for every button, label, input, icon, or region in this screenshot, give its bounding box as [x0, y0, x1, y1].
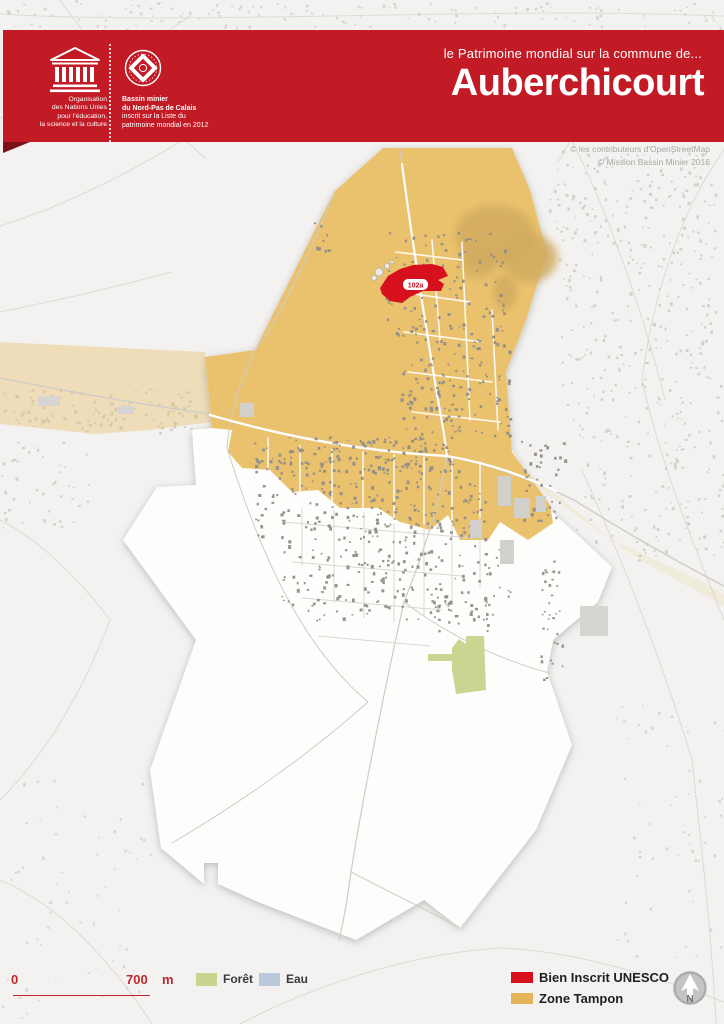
buildings-outside — [697, 231, 699, 234]
copyright-line: © Mission Bassin Minier 2016 — [570, 156, 710, 169]
buildings-town — [448, 621, 450, 624]
buildings-outside — [682, 218, 685, 221]
buildings-outside — [650, 247, 652, 249]
buildings-outside — [581, 207, 584, 210]
buildings-town — [432, 330, 435, 333]
buildings-town — [453, 524, 455, 525]
buildings-town — [462, 323, 465, 326]
buildings-town — [425, 451, 428, 453]
buildings-town — [272, 494, 274, 497]
buildings-town — [402, 417, 405, 420]
buildings-outside — [655, 338, 657, 340]
buildings-town — [425, 514, 427, 516]
buildings-town — [556, 585, 558, 587]
buildings-town — [424, 369, 427, 372]
buildings-outside — [592, 436, 595, 438]
buildings-outside — [651, 726, 654, 730]
buildings-outside — [612, 398, 614, 401]
buildings-town — [431, 431, 433, 433]
buildings-outside — [630, 476, 632, 477]
buildings-town — [441, 530, 443, 532]
buildings-town — [492, 336, 495, 339]
buildings-town — [540, 520, 543, 523]
buildings-town — [496, 328, 499, 332]
buildings-town — [318, 521, 321, 523]
buildings-outside — [699, 347, 701, 349]
buildings-outside — [687, 202, 690, 205]
buildings-town — [435, 407, 438, 411]
buildings-outside — [686, 334, 688, 336]
buildings-town — [405, 547, 407, 548]
buildings-town — [354, 551, 356, 553]
buildings-outside — [36, 938, 38, 940]
buildings-outside — [248, 26, 251, 29]
buildings-outside — [17, 10, 19, 13]
buildings-town — [292, 576, 295, 579]
buildings-town — [534, 453, 537, 456]
buildings-outside — [709, 204, 711, 206]
buildings-town — [351, 614, 353, 615]
buildings-outside — [613, 242, 616, 245]
buildings-outside — [617, 245, 619, 247]
buildings-town — [415, 457, 417, 459]
buildings-outside — [644, 386, 646, 388]
buildings-town — [414, 428, 416, 430]
buildings-town — [430, 409, 433, 412]
buildings-town — [479, 364, 482, 366]
buildings-town — [528, 475, 530, 476]
buildings-town — [262, 449, 265, 452]
buildings-outside — [624, 933, 626, 936]
buildings-town — [338, 539, 341, 541]
buildings-outside — [626, 446, 628, 448]
buildings-outside — [93, 924, 94, 925]
buildings-town — [311, 605, 313, 607]
buildings-outside — [708, 468, 710, 470]
buildings-town — [385, 577, 387, 579]
buildings-outside — [686, 516, 689, 518]
buildings-town — [371, 581, 374, 583]
buildings-town — [489, 572, 492, 575]
buildings-outside — [649, 184, 652, 187]
buildings-outside — [123, 965, 126, 968]
buildings-outside — [680, 397, 682, 399]
buildings-town — [452, 463, 454, 465]
buildings-outside — [621, 505, 624, 508]
buildings-town — [321, 591, 324, 593]
buildings-outside — [178, 21, 180, 23]
buildings-outside — [659, 515, 661, 516]
buildings-outside — [394, 6, 396, 9]
buildings-outside — [648, 227, 650, 229]
buildings-outside — [566, 227, 569, 230]
buildings-outside — [136, 858, 138, 859]
buildings-town — [255, 465, 258, 468]
buildings-town — [329, 249, 331, 251]
buildings-town — [456, 409, 458, 411]
industrial-building — [536, 496, 546, 512]
buildings-outside — [674, 10, 676, 12]
buildings-outside — [657, 528, 660, 531]
buildings-outside — [515, 7, 517, 9]
buildings-outside — [170, 429, 173, 432]
buildings-town — [487, 624, 490, 627]
scale-unit: m — [162, 972, 174, 987]
buildings-outside — [675, 353, 677, 356]
buildings-outside — [704, 326, 706, 328]
buildings-town — [438, 619, 440, 621]
buildings-town — [384, 472, 386, 474]
buildings-town — [393, 502, 396, 504]
buildings-town — [301, 462, 303, 465]
buildings-outside — [640, 188, 642, 190]
buildings-outside — [260, 6, 262, 8]
buildings-town — [485, 308, 487, 310]
buildings-outside — [720, 814, 723, 816]
buildings-town — [542, 628, 545, 630]
buildings-town — [456, 297, 458, 299]
buildings-outside — [687, 522, 690, 524]
buildings-outside — [661, 266, 663, 268]
buildings-outside — [306, 10, 308, 12]
buildings-outside — [698, 431, 700, 433]
buildings-town — [537, 520, 539, 522]
buildings-town — [379, 549, 382, 551]
buildings-town — [462, 566, 464, 567]
buildings-town — [475, 240, 477, 241]
buildings-town — [430, 388, 432, 391]
site-label-text: 102a — [408, 283, 424, 290]
buildings-outside — [37, 780, 40, 782]
buildings-outside — [583, 437, 585, 438]
buildings-town — [399, 578, 401, 580]
buildings-town — [492, 614, 494, 616]
buildings-town — [305, 462, 308, 464]
buildings-town — [466, 393, 469, 396]
buildings-outside — [75, 0, 77, 3]
buildings-outside — [685, 946, 687, 948]
buildings-outside — [563, 226, 565, 228]
buildings-town — [439, 523, 441, 525]
legend-item-forest: Forêt — [196, 972, 253, 986]
buildings-town — [448, 409, 450, 411]
buildings-town — [410, 330, 413, 333]
buildings-outside — [619, 346, 622, 349]
buildings-outside — [639, 851, 641, 853]
buildings-town — [441, 383, 443, 385]
legend-item-inscribed: Bien Inscrit UNESCO — [511, 970, 669, 985]
buildings-town — [555, 613, 557, 614]
buildings-town — [445, 595, 448, 598]
buildings-town — [458, 416, 461, 418]
buildings-town — [352, 446, 355, 449]
buildings-outside — [14, 26, 16, 27]
buildings-town — [382, 467, 385, 471]
buildings-outside — [171, 8, 174, 10]
buildings-outside — [603, 472, 606, 476]
buildings-town — [410, 525, 413, 528]
buildings-town — [545, 571, 548, 573]
buildings-town — [266, 447, 268, 449]
buildings-outside — [562, 362, 564, 364]
buildings-town — [437, 597, 439, 599]
buildings-town — [478, 580, 481, 582]
buildings-outside — [713, 20, 715, 22]
buildings-outside — [638, 724, 640, 726]
buildings-outside — [617, 228, 620, 231]
buildings-outside — [355, 24, 357, 26]
buildings-outside — [581, 428, 584, 430]
buildings-outside — [567, 164, 569, 166]
industrial-building — [514, 498, 530, 518]
buildings-outside — [633, 837, 636, 840]
buildings-outside — [571, 329, 573, 331]
buildings-outside — [665, 442, 667, 443]
buildings-town — [393, 541, 395, 543]
buildings-outside — [684, 176, 686, 178]
buildings-town — [407, 463, 410, 467]
buildings-outside — [687, 237, 689, 239]
buildings-outside — [720, 530, 723, 532]
buildings-town — [368, 530, 371, 534]
buildings-outside — [690, 367, 693, 369]
buildings-town — [482, 380, 484, 383]
buildings-outside — [97, 25, 99, 28]
buildings-town — [554, 457, 556, 460]
buildings-outside — [703, 535, 706, 538]
buildings-outside — [645, 217, 648, 220]
buildings-outside — [647, 318, 650, 320]
buildings-town — [432, 358, 434, 360]
buildings-outside — [608, 355, 611, 358]
buildings-outside — [642, 15, 644, 17]
buildings-outside — [497, 16, 499, 18]
buildings-town — [439, 605, 441, 607]
buildings-outside — [699, 282, 701, 284]
buildings-town — [412, 566, 414, 568]
buildings-town — [410, 460, 412, 462]
buildings-outside — [503, 24, 506, 27]
buildings-town — [346, 565, 349, 569]
buildings-town — [385, 572, 387, 574]
buildings-outside — [574, 231, 577, 234]
buildings-outside — [133, 970, 134, 971]
buildings-outside — [680, 504, 682, 505]
buildings-outside — [88, 972, 90, 974]
buildings-town — [418, 524, 420, 526]
buildings-outside — [719, 489, 722, 491]
buildings-outside — [699, 239, 702, 242]
buildings-town — [494, 435, 496, 437]
buildings-town — [544, 580, 547, 583]
buildings-outside — [653, 526, 656, 529]
buildings-outside — [686, 7, 688, 8]
buildings-outside — [601, 26, 603, 28]
buildings-town — [536, 465, 538, 468]
buildings-outside — [601, 440, 603, 441]
buildings-town — [407, 481, 410, 485]
buildings-town — [328, 524, 331, 527]
buildings-town — [426, 259, 428, 262]
buildings-town — [313, 472, 315, 475]
buildings-town — [408, 394, 410, 396]
buildings-town — [449, 470, 451, 472]
buildings-outside — [687, 731, 689, 733]
buildings-town — [424, 553, 427, 556]
buildings-outside — [594, 215, 596, 218]
buildings-town — [283, 520, 286, 522]
buildings-town — [454, 431, 456, 433]
buildings-outside — [674, 463, 677, 467]
buildings-outside — [584, 239, 587, 242]
buildings-outside — [630, 457, 633, 459]
buildings-town — [354, 497, 357, 500]
buildings-town — [329, 481, 331, 484]
buildings-town — [540, 461, 542, 463]
buildings-town — [548, 618, 550, 619]
buildings-town — [508, 382, 511, 385]
bm-line: du Nord-Pas de Calais — [122, 105, 208, 114]
buildings-outside — [680, 263, 682, 265]
buildings-outside — [608, 508, 610, 510]
buildings-town — [415, 523, 417, 525]
buildings-outside — [22, 522, 24, 524]
buildings-outside — [157, 2, 160, 5]
buildings-outside — [705, 244, 707, 246]
bm-line: Bassin minier — [122, 96, 208, 105]
buildings-outside — [455, 14, 458, 17]
buildings-town — [559, 456, 562, 459]
buildings-outside — [682, 284, 684, 286]
org-line: des Nations Unies — [3, 104, 107, 112]
buildings-town — [384, 524, 386, 526]
buildings-town — [402, 452, 405, 454]
north-arrow-icon: N — [671, 969, 709, 1007]
buildings-outside — [670, 502, 672, 504]
buildings-town — [525, 490, 528, 492]
buildings-town — [465, 239, 468, 242]
buildings-town — [368, 541, 370, 543]
buildings-town — [442, 505, 445, 507]
buildings-town — [276, 494, 278, 496]
buildings-outside — [710, 184, 713, 186]
buildings-town — [541, 661, 544, 663]
buildings-town — [280, 513, 283, 516]
terril-wooded — [460, 246, 496, 278]
buildings-outside — [721, 508, 723, 510]
bm-line: patrimoine mondial en 2012 — [122, 122, 208, 131]
buildings-town — [397, 562, 400, 565]
buildings-outside — [563, 278, 565, 280]
buildings-outside — [689, 531, 691, 532]
buildings-outside — [114, 868, 116, 870]
buildings-outside — [640, 349, 642, 351]
road-outside — [0, 272, 172, 312]
buildings-town — [450, 327, 453, 330]
buildings-town — [284, 458, 286, 460]
buildings-outside — [109, 16, 110, 18]
buildings-town — [367, 442, 369, 444]
buildings-outside — [568, 279, 571, 282]
buildings-town — [416, 481, 418, 483]
buildings-outside — [672, 507, 675, 510]
buildings-outside — [88, 484, 90, 486]
scale-end: 700 — [126, 972, 148, 987]
buildings-town — [508, 590, 510, 591]
buildings-outside — [570, 289, 572, 291]
buildings-outside — [589, 24, 591, 26]
buildings-town — [451, 437, 454, 439]
buildings-outside — [555, 17, 557, 19]
buildings-outside — [5, 518, 8, 521]
buildings-outside — [677, 855, 679, 857]
buildings-outside — [592, 208, 594, 210]
buildings-town — [387, 526, 389, 528]
buildings-town — [419, 439, 421, 441]
buildings-outside — [594, 187, 596, 190]
buildings-town — [295, 493, 297, 495]
buildings-town — [429, 466, 432, 470]
industrial-building — [500, 540, 514, 564]
buildings-town — [486, 573, 488, 575]
buildings-outside — [721, 546, 723, 548]
buildings-town — [373, 572, 375, 574]
buildings-outside — [639, 803, 640, 804]
buildings-town — [288, 545, 291, 549]
buildings-town — [491, 315, 494, 318]
legend-label: Bien Inscrit UNESCO — [539, 970, 669, 985]
buildings-outside — [675, 957, 677, 958]
buildings-town — [369, 496, 371, 498]
buildings-town — [325, 581, 328, 583]
forest-area — [452, 636, 486, 694]
buildings-town — [304, 582, 306, 584]
buildings-outside — [638, 272, 641, 274]
buildings-outside — [125, 8, 127, 10]
buildings-outside — [644, 378, 646, 380]
buildings-outside — [576, 228, 578, 230]
buildings-outside — [120, 818, 122, 821]
buildings-outside — [48, 510, 50, 512]
buildings-town — [549, 506, 551, 508]
buildings-town — [490, 233, 492, 235]
buildings-outside — [649, 348, 651, 351]
buildings-outside — [679, 446, 681, 448]
buildings-town — [447, 416, 450, 418]
buildings-town — [283, 579, 285, 581]
buildings-outside — [621, 519, 623, 521]
buildings-town — [371, 565, 374, 568]
buildings-outside — [284, 18, 287, 21]
buildings-town — [404, 307, 407, 309]
buildings-outside — [224, 28, 226, 29]
buildings-outside — [708, 298, 710, 300]
buildings-town — [369, 441, 371, 444]
buildings-town — [431, 600, 434, 602]
buildings-outside — [627, 940, 629, 943]
buildings-outside — [604, 180, 606, 181]
buildings-outside — [252, 6, 254, 8]
buildings-town — [479, 382, 481, 384]
buildings-town — [266, 468, 268, 470]
buildings-outside — [638, 421, 640, 424]
buildings-town — [497, 565, 499, 567]
buildings-outside — [674, 466, 677, 470]
buildings-town — [309, 575, 311, 577]
buildings-town — [355, 553, 358, 557]
buildings-outside — [9, 14, 11, 15]
buildings-outside — [602, 390, 604, 393]
